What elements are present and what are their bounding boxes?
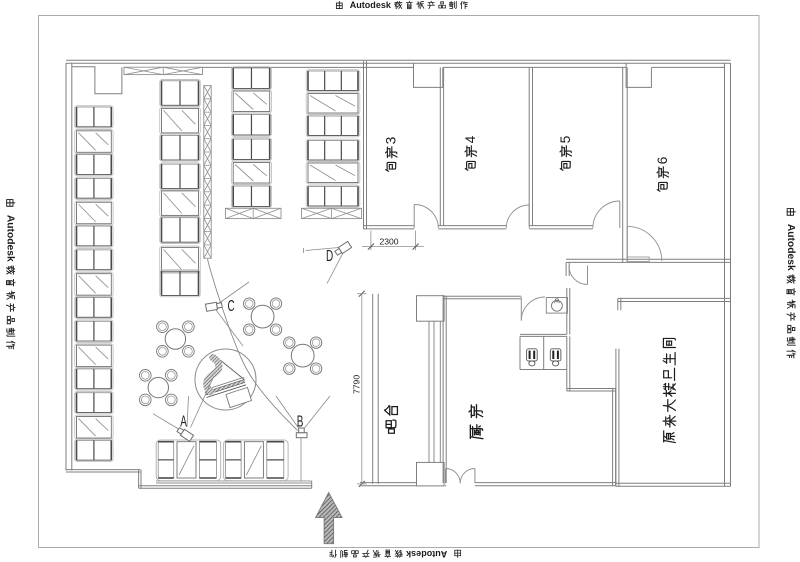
svg-text:5: 5 xyxy=(558,135,573,143)
svg-text:6: 6 xyxy=(655,156,670,164)
svg-text:3: 3 xyxy=(384,136,399,144)
svg-text:Autodesk: Autodesk xyxy=(350,0,392,10)
svg-text:2300: 2300 xyxy=(379,236,398,246)
svg-text:Autodesk: Autodesk xyxy=(405,549,447,559)
svg-text:7790: 7790 xyxy=(352,375,362,394)
svg-text:4: 4 xyxy=(463,135,478,143)
svg-text:Autodesk: Autodesk xyxy=(4,215,15,262)
svg-text:Autodesk: Autodesk xyxy=(785,224,796,271)
svg-text:A: A xyxy=(180,412,187,430)
svg-text:C: C xyxy=(228,297,235,315)
svg-text:D: D xyxy=(326,247,333,265)
svg-text:B: B xyxy=(297,412,304,430)
